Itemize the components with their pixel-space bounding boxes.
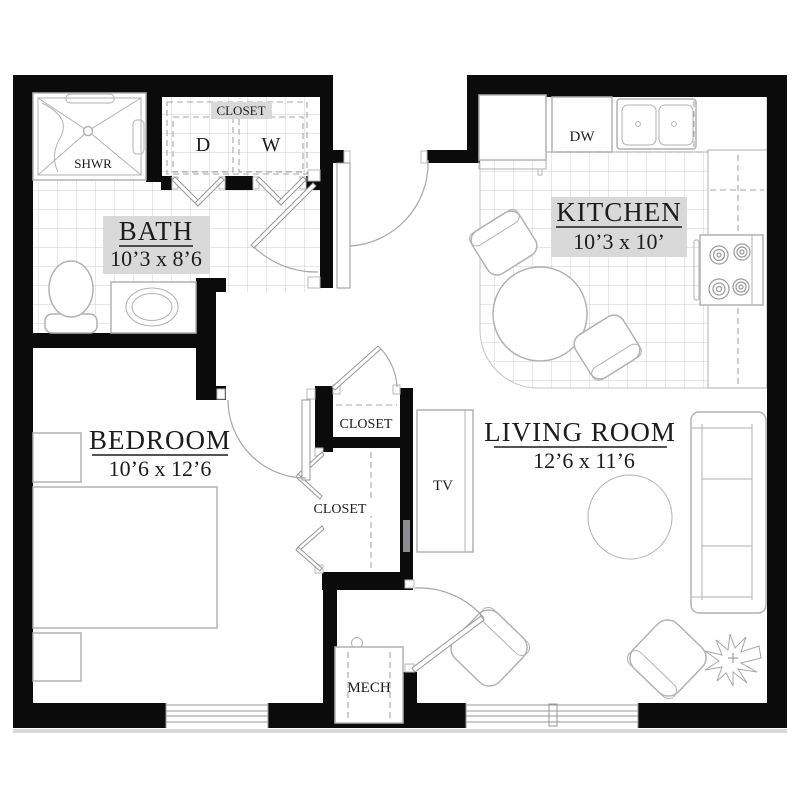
nightstand-top: [33, 433, 81, 482]
dryer-label: D: [196, 134, 210, 156]
round-rug: [588, 475, 672, 559]
living-room-label: LIVING ROOM: [484, 417, 676, 447]
bedroom-label: BEDROOM: [89, 425, 231, 455]
kitchen-label: KITCHEN: [556, 197, 681, 227]
hall-closet-upper-label: CLOSET: [340, 417, 393, 432]
mechanical-label: MECH: [347, 680, 391, 696]
kitchen-dims: 10’3 x 10’: [573, 229, 665, 254]
kitchen-sink: [617, 99, 696, 149]
bedroom-door: [228, 400, 310, 480]
armchair-corner: [624, 614, 712, 702]
upper-closet-door: [332, 346, 397, 390]
sofa: [691, 412, 766, 613]
nightstand-bottom: [33, 633, 81, 681]
hall-closet-lower-label: CLOSET: [314, 502, 367, 517]
tv-label: TV: [433, 478, 453, 494]
bath-label: BATH: [119, 216, 194, 246]
stove: [694, 235, 763, 305]
shower-label: SHWR: [74, 156, 112, 171]
dining-table: [493, 267, 587, 361]
floor-plan-drawing: BATH 10’3 x 8’6 KITCHEN 10’3 x 10’ BEDRO…: [0, 0, 800, 800]
washer-label: W: [262, 134, 281, 156]
living-room-dims: 12’6 x 11’6: [533, 448, 635, 473]
bathroom-vanity: [111, 282, 196, 333]
laundry-closet-label: CLOSET: [216, 103, 265, 118]
closet-bifold-lower2: [296, 547, 322, 571]
dishwasher-label: DW: [570, 129, 596, 145]
closet-bifold-lower: [298, 526, 324, 550]
bedroom-dims: 10’6 x 12’6: [109, 456, 212, 481]
potted-plant: [705, 634, 761, 686]
armchair-entry: [445, 604, 533, 692]
wall-niche-hatch: [403, 520, 410, 552]
exterior-grade-line: [13, 729, 787, 733]
bath-dims: 10’3 x 8’6: [110, 246, 202, 271]
bed: [33, 487, 217, 628]
entry-door: [337, 160, 428, 288]
living-room-window: [466, 703, 638, 728]
floor-plan-page: BATH 10’3 x 8’6 KITCHEN 10’3 x 10’ BEDRO…: [0, 0, 800, 800]
toilet: [45, 261, 97, 333]
bedroom-window: [166, 703, 268, 728]
